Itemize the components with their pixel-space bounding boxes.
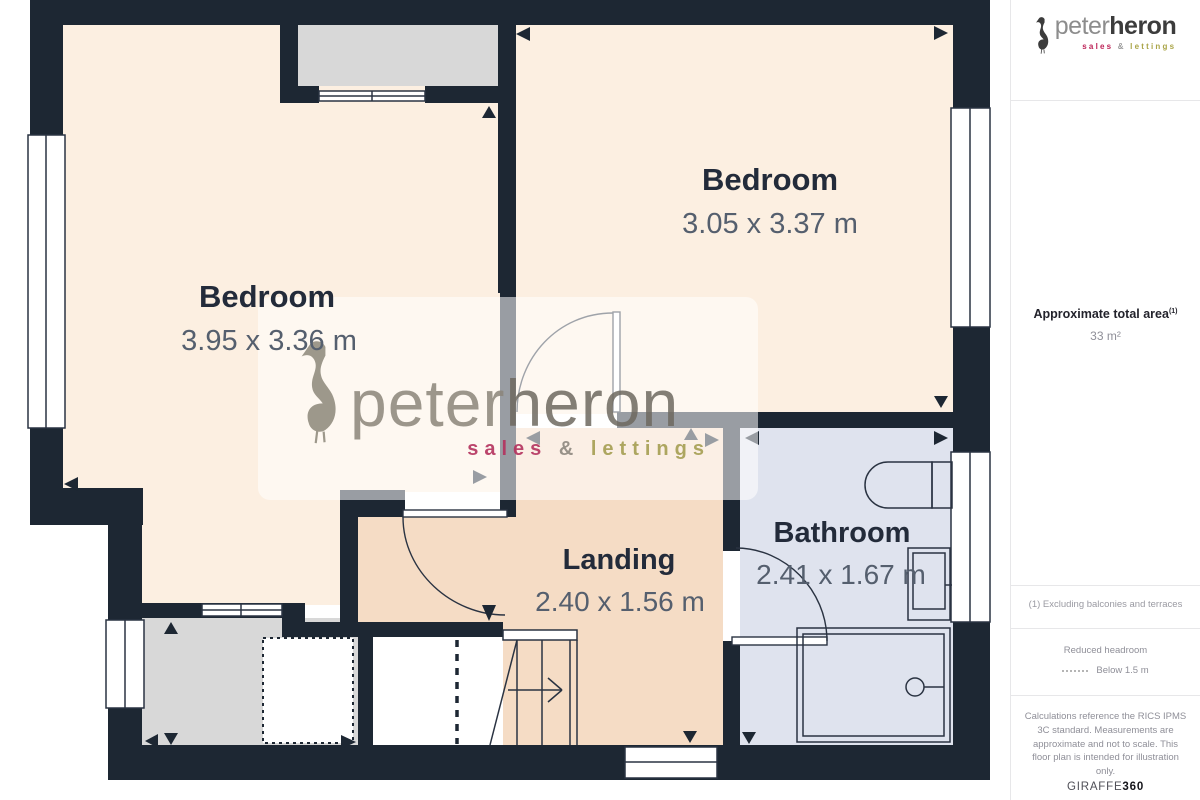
area-footnote: (1) Excluding balconies and terraces	[1011, 599, 1200, 610]
room-label-landing: Landing	[563, 544, 676, 576]
legend-value: Below 1.5 m	[1096, 665, 1148, 676]
room-label-bedroom-left: Bedroom	[199, 279, 335, 314]
room-dims-landing: 2.40 x 1.56 m	[535, 586, 705, 617]
wall-step	[30, 488, 143, 525]
wall-understairs-top	[305, 622, 503, 637]
understairs-floor	[373, 637, 503, 747]
brand-tagline: sales & lettings	[1055, 43, 1176, 51]
window-bottom	[625, 747, 717, 778]
room-dims-bedroom-right: 3.05 x 3.37 m	[682, 208, 858, 240]
wall-left-upper	[30, 0, 63, 138]
disclaimer-text: Calculations reference the RICS IPMS 3C …	[1023, 710, 1188, 779]
room-label-bathroom: Bathroom	[774, 517, 911, 549]
giraffe360-credit: GIRAFFE360	[1011, 781, 1200, 793]
sidebar-divider	[1011, 695, 1200, 696]
wardrobe-sliding-doors	[319, 91, 425, 101]
window-eaves	[202, 604, 282, 616]
wall-step-vertical	[340, 490, 358, 622]
wall-understairs-left	[358, 622, 373, 745]
wall-eaves-step	[282, 603, 305, 637]
watermark-tagline: sales & lettings	[467, 438, 710, 460]
wall-between-bedrooms	[498, 0, 516, 293]
sidebar-divider	[1011, 585, 1200, 586]
brand-name: peterheron	[1055, 14, 1176, 39]
heron-icon	[1035, 16, 1051, 54]
room-label-bedroom-right: Bedroom	[702, 162, 838, 197]
window-left	[28, 135, 65, 428]
wall-bottom	[108, 745, 990, 780]
wall-storage-pier-left	[280, 23, 298, 103]
storage-block	[298, 23, 498, 86]
brand-logo: peterheron sales & lettings	[1011, 14, 1200, 54]
wall-bathroom-left-lower	[723, 641, 740, 780]
reduced-headroom-zone	[263, 638, 353, 743]
window-left-lower	[106, 620, 144, 708]
total-area-section: Approximate total area(1) 33 m²	[1011, 307, 1200, 343]
wall-storage-under-left	[298, 86, 319, 103]
total-area-label: Approximate total area(1)	[1011, 307, 1200, 321]
room-dims-bedroom-left: 3.95 x 3.36 m	[181, 325, 357, 357]
wall-storage-under-right	[425, 86, 498, 103]
dashed-line-icon	[1062, 670, 1088, 672]
total-area-value: 33 m²	[1011, 329, 1200, 343]
sidebar-divider	[1011, 628, 1200, 629]
window-right-bedroom	[951, 108, 990, 327]
room-dims-bathroom: 2.41 x 1.67 m	[756, 559, 926, 590]
watermark-brand: peterheron	[350, 366, 679, 440]
window-right-bathroom	[951, 452, 990, 622]
legend-title: Reduced headroom	[1011, 645, 1200, 656]
floorplan-svg: peterheron sales & lettings Bedroom 3.95…	[0, 0, 1010, 800]
reduced-headroom-legend: Reduced headroom Below 1.5 m	[1011, 645, 1200, 676]
info-sidebar: peterheron sales & lettings Approximate …	[1010, 0, 1200, 800]
sidebar-divider	[1011, 100, 1200, 101]
page: peterheron sales & lettings Bedroom 3.95…	[0, 0, 1200, 800]
